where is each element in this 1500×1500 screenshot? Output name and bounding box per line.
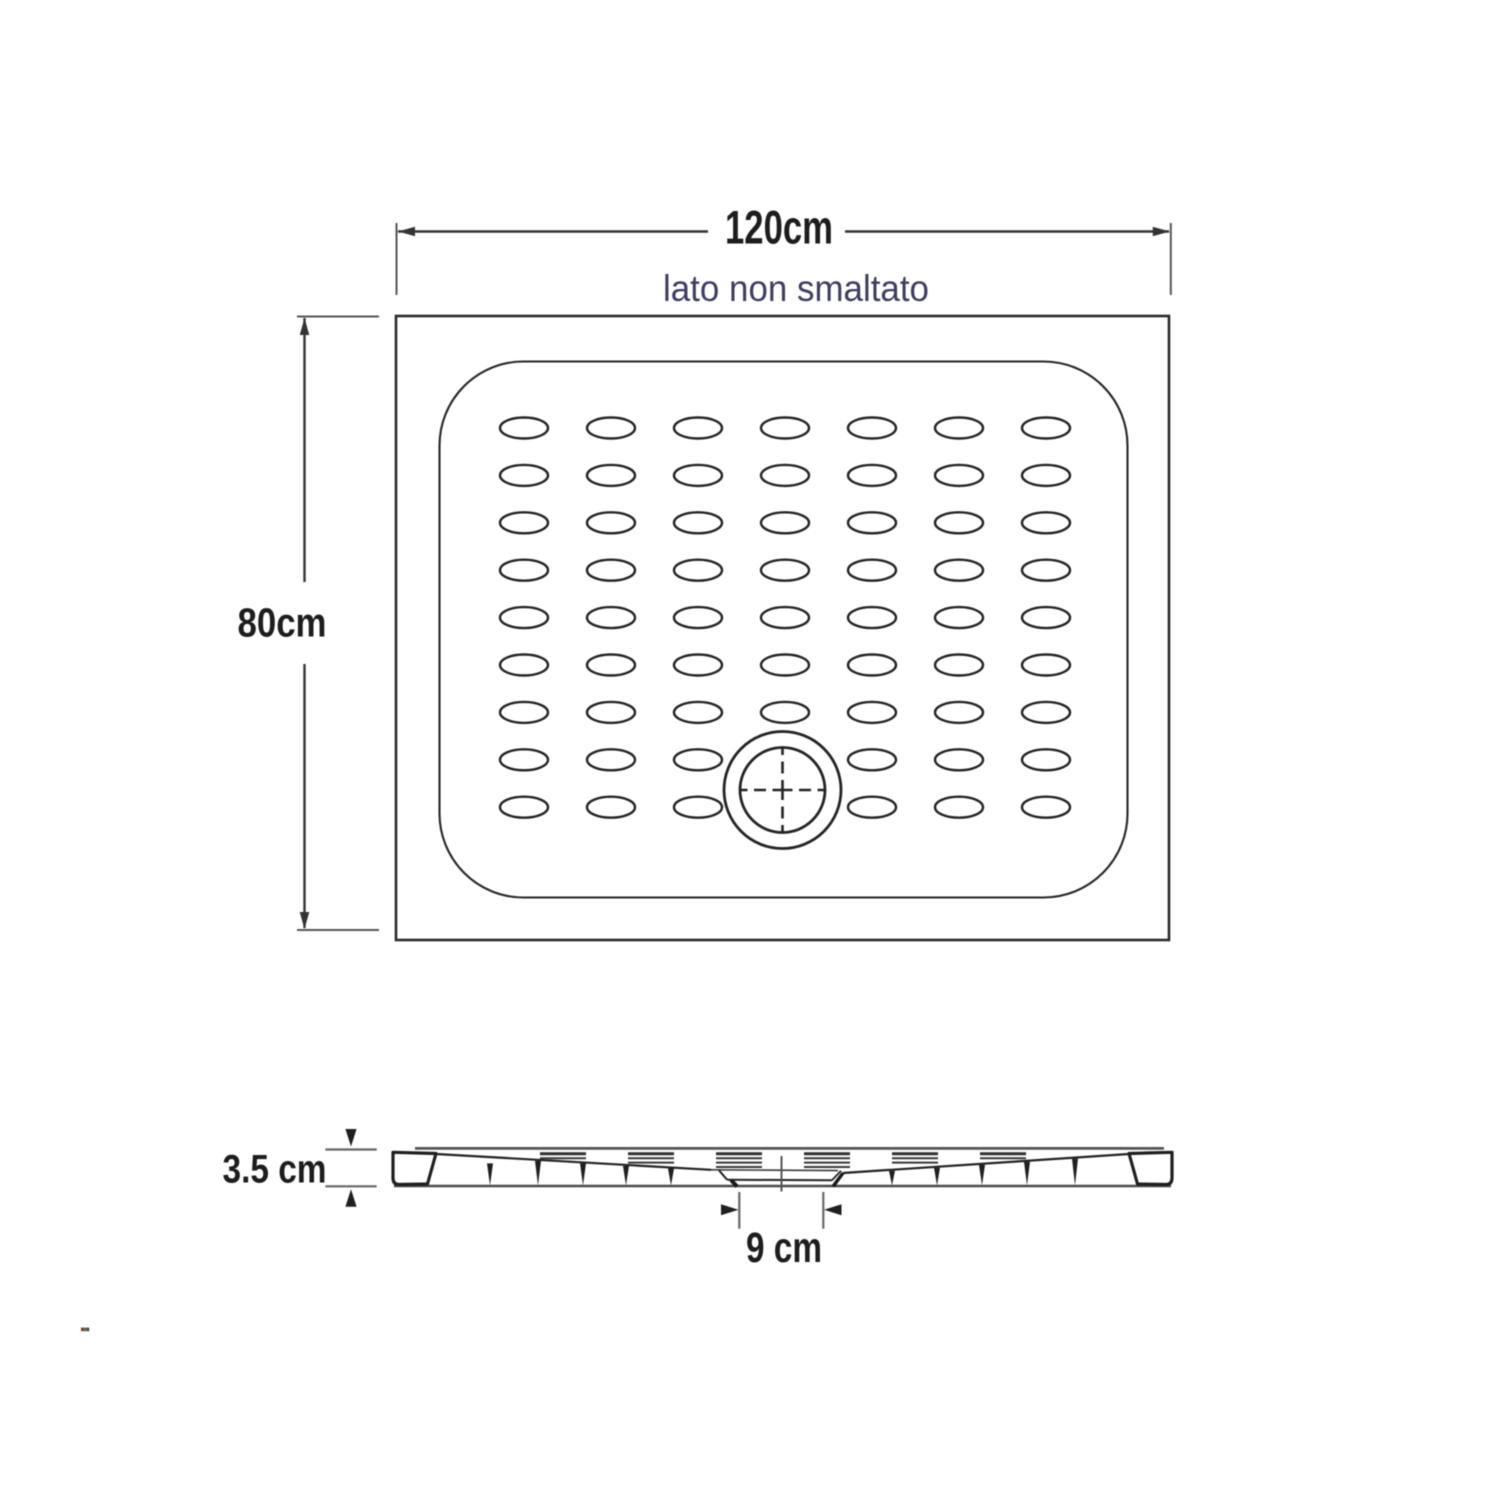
svg-text:lato non smaltato: lato non smaltato [663, 268, 929, 309]
svg-text:120cm: 120cm [725, 202, 833, 255]
svg-text:80cm: 80cm [238, 600, 327, 646]
svg-text:3.5 cm: 3.5 cm [223, 1148, 327, 1192]
svg-text:9 cm: 9 cm [746, 1224, 822, 1272]
